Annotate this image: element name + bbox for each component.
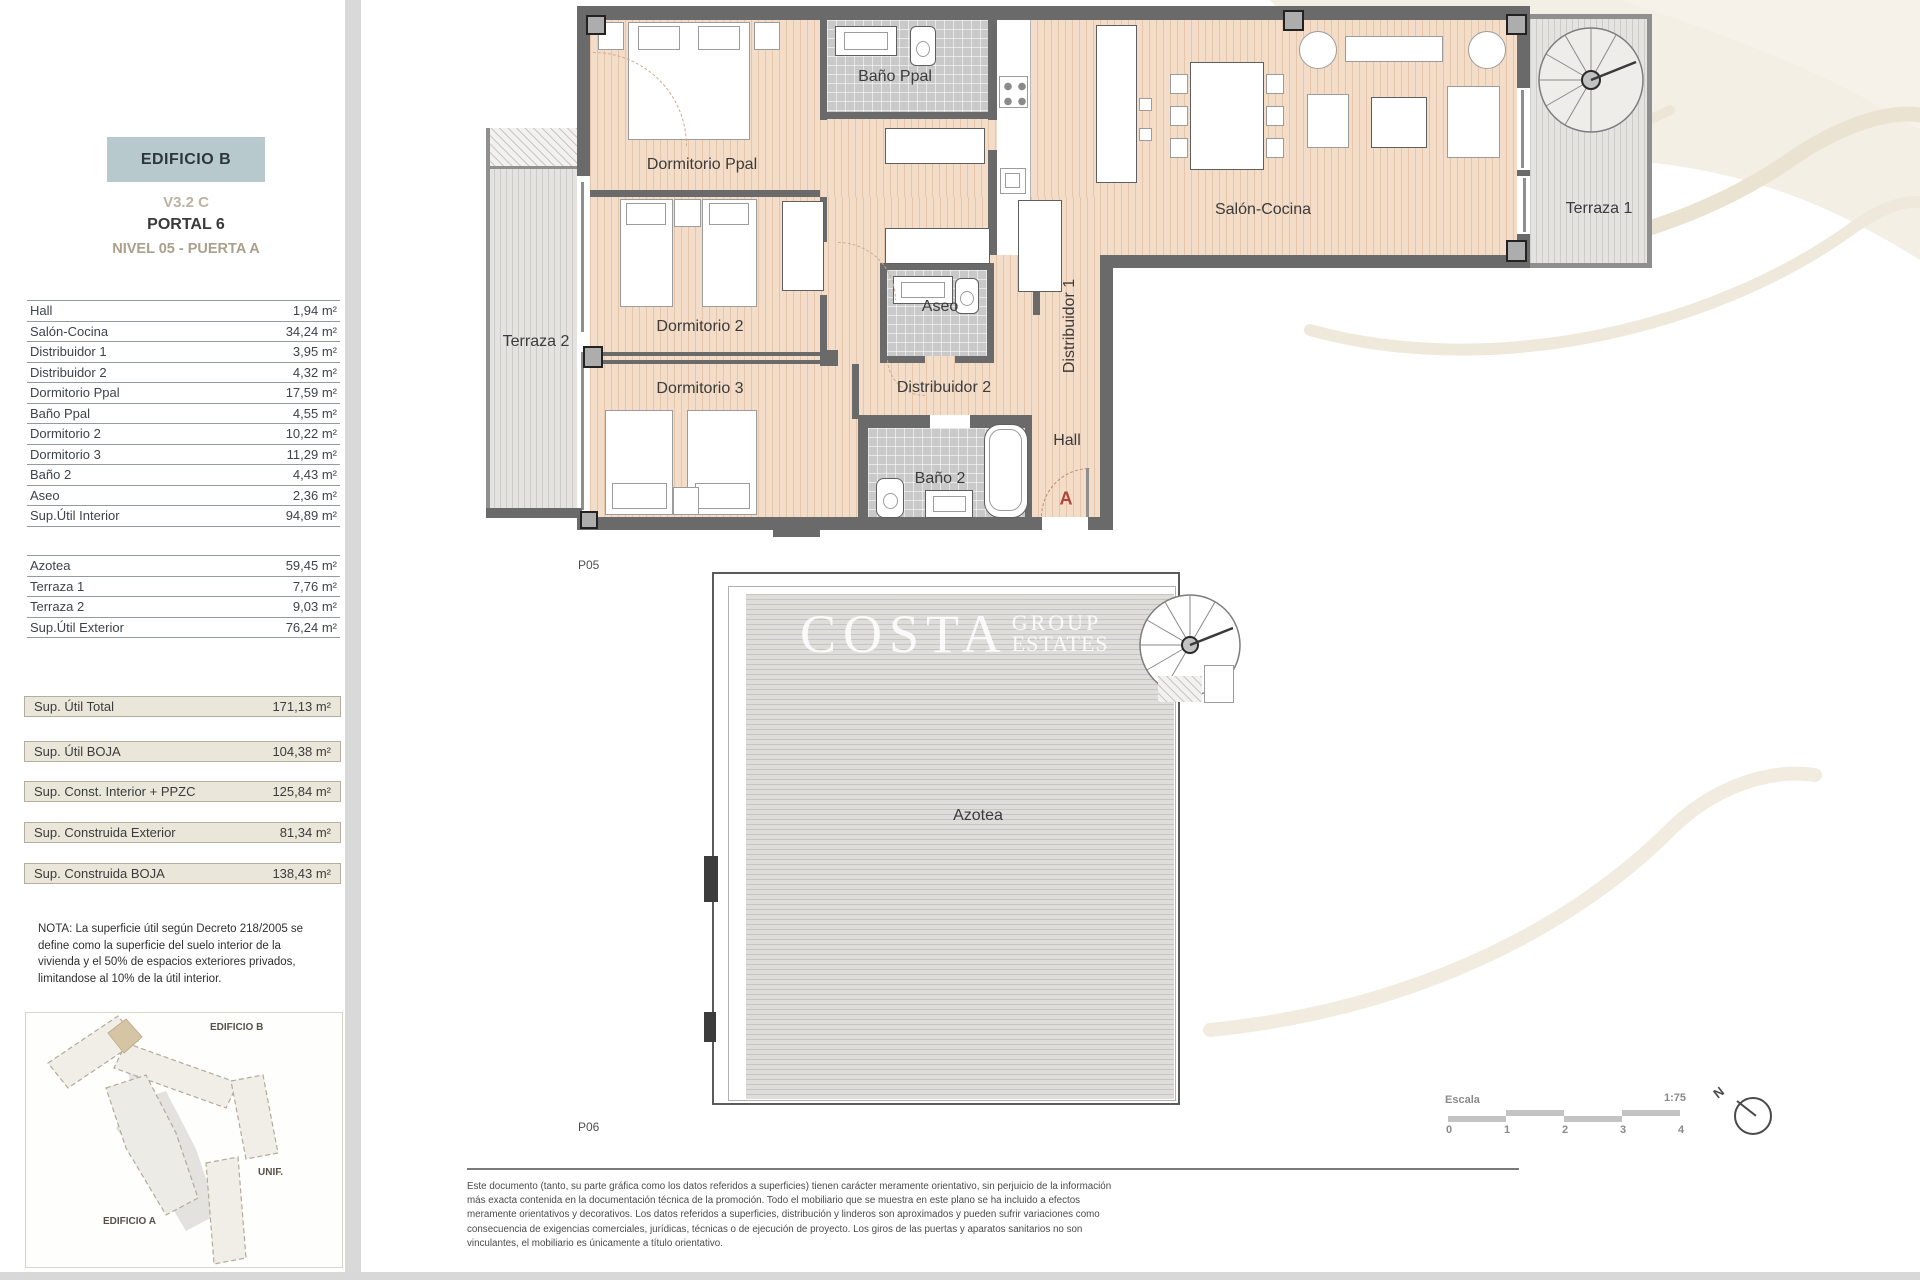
single-bed [702,199,757,307]
site-map-drawing [26,1013,342,1267]
column [1506,240,1527,262]
terrace-parapet [486,128,490,518]
room-label-bano-2: Baño 2 [915,470,966,488]
column [580,511,598,529]
sink-basin [844,32,888,50]
scale-tick: 0 [1443,1124,1455,1136]
round-corner-table [1468,31,1506,69]
fridge-closet [1018,200,1062,292]
table-row: Terraza 29,03 m² [27,596,340,617]
table-row: Distribuidor 13,95 m² [27,341,340,362]
dining-table [1190,62,1264,170]
entry-door-gap [1042,517,1088,530]
scale-segment [1564,1116,1622,1122]
bathtub [984,424,1028,518]
pillow [695,483,750,509]
pillow [638,26,680,50]
site-map [25,1012,343,1268]
site-map-label-edificio-b: EDIFICIO B [210,1022,263,1033]
wall [858,415,868,517]
window [1523,178,1526,232]
terrace-parapet [1530,14,1652,19]
scale-segment [1622,1110,1680,1116]
scale-label: Escala [1445,1094,1480,1106]
table-row: Sup.Útil Interior94,89 m² [27,505,340,526]
toilet-bowl [916,41,930,57]
toilet-bowl [883,493,898,509]
round-table [1299,31,1337,69]
wall [577,6,1530,20]
roof-surface [746,594,1174,1099]
wall [590,352,827,356]
coffee-table [1371,97,1427,148]
stool [1139,98,1152,111]
wardrobe [782,201,824,291]
window [581,352,584,510]
roof-stair-hatch [1158,676,1202,702]
sofa-bench [1345,36,1443,62]
wall [987,263,994,363]
scale-segment [1448,1116,1506,1122]
pillow [612,483,667,509]
roof-door-marker [704,1012,716,1042]
room-label-bano-ppal: Baño Ppal [858,68,932,86]
nightstand [674,199,701,227]
sofa [1447,86,1500,158]
door-gap [930,415,970,428]
building-title-box: EDIFICIO B [107,137,265,182]
column [1506,14,1527,35]
wall [1113,255,1530,268]
kitchen-sink [1000,168,1026,194]
scale-ratio: 1:75 [1664,1092,1686,1104]
chair [1170,106,1188,126]
table-row: Baño 24,43 m² [27,464,340,485]
unit-version: V3.2 C [0,194,372,211]
site-map-label-unif: UNIF. [258,1167,283,1178]
stove [999,76,1028,108]
summary-box-construida-boja: Sup. Construida BOJA138,43 m² [24,863,341,884]
toilet [876,478,904,518]
portal-title: PORTAL 6 [0,216,372,234]
scale-tick: 3 [1617,1124,1629,1136]
sidebar-divider [345,0,361,1280]
table-row: Distribuidor 24,32 m² [27,362,340,383]
room-label-dormitorio-3: Dormitorio 3 [656,380,743,398]
note-text: NOTA: La superficie útil según Decreto 2… [38,921,303,987]
wall [820,295,827,355]
room-label-dormitorio-ppal: Dormitorio Ppal [647,156,757,174]
table-row: Terraza 17,76 m² [27,576,340,597]
exterior-areas-table: Azotea59,45 m² Terraza 17,76 m² Terraza … [27,555,340,638]
costa-watermark-estates: ESTATES [1012,633,1109,654]
wall [590,360,827,364]
room-label-azotea: Azotea [953,807,1003,825]
column [583,346,603,368]
room-label-dormitorio-2: Dormitorio 2 [656,318,743,336]
wall [820,20,827,120]
summary-box-util-boja: Sup. Útil BOJA104,38 m² [24,741,341,762]
table-row: Dormitorio Ppal17,59 m² [27,382,340,403]
wall [486,508,582,518]
sink-counter [835,26,897,56]
disclaimer-rule [467,1168,1519,1170]
pillow [626,203,666,225]
sink-basin [933,496,966,512]
scale-tick: 1 [1501,1124,1513,1136]
costa-watermark: COSTA GROUP ESTATES [800,608,1109,660]
roof-stair-landing [1204,665,1234,703]
costa-watermark-brand: COSTA [800,608,1008,660]
room-label-distribuidor-2: Distribuidor 2 [897,379,991,397]
spiral-staircase [1536,22,1648,138]
disclaimer: Este documento (tanto, su parte gráfica … [467,1180,1111,1251]
terrace-edge [488,166,577,169]
pillow [698,26,740,50]
table-row: Baño Ppal4,55 m² [27,403,340,424]
kitchen-island [1096,25,1137,183]
table-row: Aseo2,36 m² [27,485,340,506]
terrace-parapet [1530,263,1652,268]
closet [885,128,985,164]
room-label-hall: Hall [1053,432,1081,450]
sidebar: EDIFICIO B V3.2 C PORTAL 6 NIVEL 05 - PU… [0,0,372,1280]
wall [773,527,820,537]
wall [852,364,859,419]
chair [1266,138,1284,158]
site-map-label-edificio-a: EDIFICIO A [103,1216,156,1227]
summary-box-util-total: Sup. Útil Total171,13 m² [24,696,341,717]
wall [988,20,997,120]
sink-basin [901,282,945,298]
room-label-distribuidor-1: Distribuidor 1 [1061,279,1079,373]
wall [1100,255,1113,530]
page-bottom-strip [0,1272,1920,1280]
nightstand [754,22,780,50]
table-row: Salón-Cocina34,24 m² [27,321,340,342]
sliding-door [1521,90,1524,168]
summary-box-const-interior: Sup. Const. Interior + PPZC125,84 m² [24,781,341,802]
toilet [910,26,936,66]
nightstand [673,487,699,515]
wall [880,263,994,270]
level-title: NIVEL 05 - PUERTA A [0,241,372,257]
stool [1139,128,1152,141]
table-row: Azotea59,45 m² [27,555,340,576]
interior-areas-table: Hall1,94 m² Salón-Cocina34,24 m² Distrib… [27,300,340,527]
wall [820,112,990,119]
wall [955,356,994,363]
scale-tick: 2 [1559,1124,1571,1136]
roof-door-marker [704,856,718,902]
wall [577,517,1113,530]
sink-counter [925,490,973,518]
table-row: Dormitorio 311,29 m² [27,444,340,465]
column [1283,10,1304,31]
toilet-bowl [960,291,974,306]
pillow [709,203,749,225]
table-row: Dormitorio 210,22 m² [27,423,340,444]
room-label-salon-cocina: Salón-Cocina [1215,201,1311,219]
chair [1170,74,1188,94]
single-bed [620,199,673,307]
chair [1266,74,1284,94]
costa-watermark-group: GROUP [1012,612,1109,633]
table-row: Sup.Útil Exterior76,24 m² [27,617,340,638]
room-label-terraza-2: Terraza 2 [503,333,570,351]
window [581,182,584,332]
room-label-terraza-1: Terraza 1 [1566,200,1633,218]
column [586,15,606,35]
scale-tick: 4 [1675,1124,1687,1136]
armchair [1307,94,1349,148]
scale-segment [1506,1110,1564,1116]
chair [1266,106,1284,126]
wall [590,190,820,197]
summary-box-construida-exterior: Sup. Construida Exterior81,34 m² [24,822,341,843]
floorplan-sheet: { "header": { "building": "EDIFICIO B", … [0,0,1920,1280]
plan-page-label-p06: P06 [578,1120,599,1134]
sink-basin [1005,173,1020,188]
room-label-aseo: Aseo [922,298,958,316]
toilet [955,278,979,314]
table-row: Hall1,94 m² [27,300,340,321]
entry-letter: A [1060,489,1073,510]
building-title: EDIFICIO B [141,151,231,169]
bathtub-inner [989,429,1022,511]
chair [1170,138,1188,158]
terrace-hatch [488,128,577,168]
closet [885,228,990,264]
single-bed [605,410,673,515]
